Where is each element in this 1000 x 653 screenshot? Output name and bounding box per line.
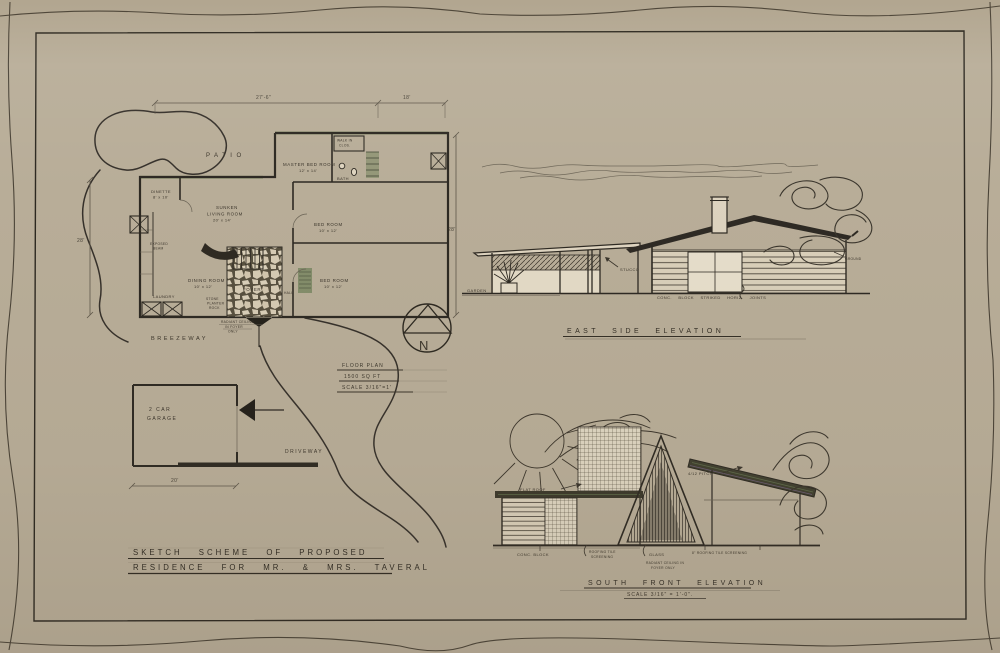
south-label-flat-roof: FLAT ROOF [520,487,546,492]
label-master-bedroom: MASTER BED ROOM [283,162,335,167]
label-dining-size: 10' x 12' [194,284,212,289]
east-stucco-leader [607,259,618,267]
label-master-bedroom-size: 12' x 14' [299,168,317,173]
glass-brace [643,545,646,556]
label-driveway: DRIVEWAY [285,449,323,455]
label-bedroom-lower: BED ROOM [320,278,349,283]
label-dinette-size: 8' x 10' [153,195,169,200]
south-label-screening-2: SCREENING [591,555,613,559]
label-garage-2: GARAGE [147,416,177,422]
label-garage-1: 2 CAR [149,407,171,413]
east-right-structure [626,197,858,293]
south-label-glass: GLASS [649,552,664,557]
plan-green-walls [140,132,448,293]
note-planter-3: ROCK [209,306,220,310]
label-laundry: LAUNDRY [153,294,175,299]
south-elevation: FLAT ROOF 4/12 PITCH CONC. BLOCK ROOFING… [493,414,829,599]
south-label-screening-1: ROOFING TILE [589,550,616,554]
south-label-pitch: 4/12 PITCH [688,471,713,476]
label-bedroom-upper: BED ROOM [314,222,343,227]
label-living-size: 20' x 14' [213,218,231,223]
caption-area: 1500 SQ FT [344,374,381,380]
label-dinette: DINETTE [151,189,171,194]
floor-plan: 27'-6" 18' 28' 28' 20' [77,95,459,547]
label-patio: PATIO [206,153,246,159]
blueprint-svg: 27'-6" 18' 28' 28' 20' [0,0,1000,653]
pitch-arrowhead [737,466,743,471]
east-elevation: GARDEN STUCCO GROUND CONC. BLOCK STRIKED… [462,164,872,340]
label-breezeway: BREEZEWAY [151,336,208,342]
title-block: SKETCH SCHEME OF PROPOSED RESIDENCE FOR … [128,548,430,574]
label-bedroom-upper-size: 10' x 12' [319,228,337,233]
label-foyer: FOYER [243,287,261,292]
label-living-1: SUNKEN [216,205,238,210]
east-label-garden: GARDEN [467,288,487,293]
east-wall-note: CONC. BLOCK STRIKED HORIZ. JOINTS [657,295,766,300]
south-scale-note: SCALE 3/16" = 1'-0". [627,592,693,598]
label-walkin-2: CLOS. [339,144,350,148]
dim-top-right: 18' [403,95,411,101]
label-dining: DINING ROOM [188,278,225,283]
south-label-radiant-2: FOYER ONLY [651,566,676,570]
south-structure [495,427,816,545]
plan-walls [140,133,448,317]
note-planter-2: PLANTER [207,302,225,306]
label-bedroom-lower-size: 10' x 12' [324,284,342,289]
sheet-title-line2: RESIDENCE FOR MR. & MRS. TAVERAL [133,563,430,572]
dim-side-left: 28' [77,238,85,244]
east-stucco-arrowhead [605,257,610,262]
border-frame [34,31,966,621]
compass-icon: N [403,304,451,353]
east-left-structure [474,243,640,293]
south-label-screening-8: 8" ROOFING TILE SCREENING [692,551,747,555]
label-walkin-1: WALK IN [337,139,353,143]
drawing-sheet: 27'-6" 18' 28' 28' 20' [0,0,1000,653]
dim-side-right: 28' [448,227,456,233]
note-exposed-2: BEAM [153,247,164,251]
note-exposed-1: EXPOSED [150,242,168,246]
south-title: SOUTH FRONT ELEVATION [588,580,766,587]
compass-letter: N [419,338,428,353]
screening-brace [584,545,587,556]
dim-garage: 20' [171,478,179,484]
label-hall: HALL [284,291,293,295]
south-label-radiant-1: RADIANT CEILING IN [646,561,684,565]
caption-title: FLOOR PLAN [342,363,384,369]
east-cloud-lines [482,164,818,181]
note-radiant-1: RADIANT CEILING [221,320,254,324]
south-label-conc-block: CONC. BLOCK [517,552,549,557]
note-radiant-2: IN FOYER [225,325,243,329]
sheet-title-line1: SKETCH SCHEME OF PROPOSED [133,548,368,557]
note-radiant-3: ONLY [228,330,238,334]
plan-caption: FLOOR PLAN 1500 SQ FT SCALE 3/16"=1' [337,363,447,392]
east-label-stucco: STUCCO [620,267,639,272]
east-title: EAST SIDE ELEVATION [567,328,724,335]
label-living-2: LIVING ROOM [207,212,243,217]
east-label-ground: GROUND [845,257,862,261]
dim-top-left: 27'-6" [256,95,271,101]
note-planter-1: STONE [206,297,219,301]
label-bath: BATH [337,176,349,181]
caption-scale: SCALE 3/16"=1' [342,385,392,391]
